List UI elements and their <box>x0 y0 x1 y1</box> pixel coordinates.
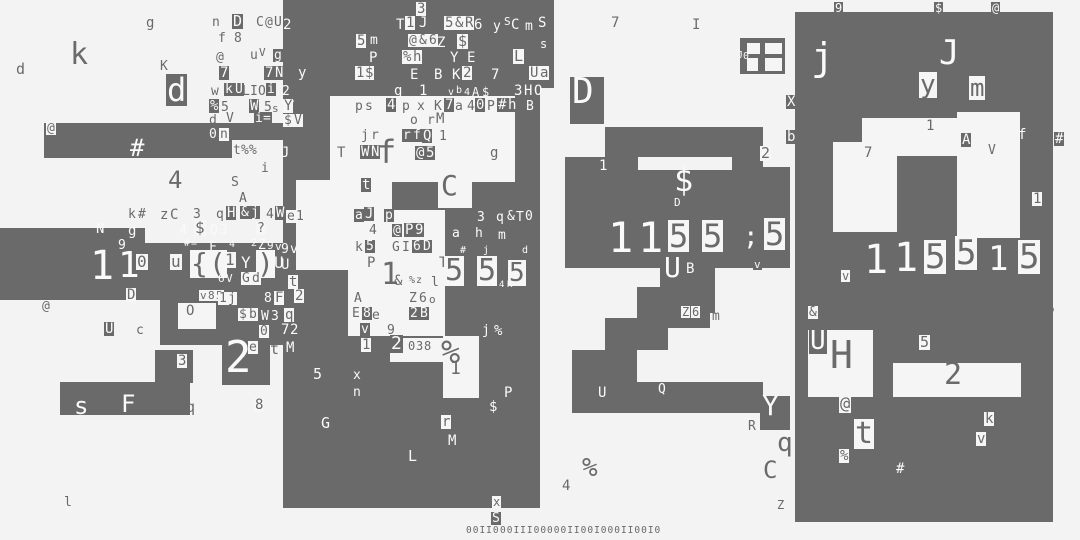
glyph: Q <box>210 224 218 237</box>
mid-strip-1 <box>605 127 732 157</box>
glyph: $ <box>934 2 943 14</box>
glyph: 1 <box>599 159 607 173</box>
glyph: $ <box>489 400 497 414</box>
glyph: r <box>441 415 451 429</box>
glyph: g <box>128 224 136 238</box>
glyph: M <box>436 112 444 126</box>
glyph: S <box>538 16 546 30</box>
glyph: P <box>369 51 377 65</box>
glyph: @ <box>839 396 851 413</box>
glyph: { <box>190 250 209 278</box>
glyph: J <box>364 207 374 221</box>
glyph: 3 <box>271 310 279 323</box>
glyph: A <box>273 128 281 141</box>
glyph: a <box>455 100 463 113</box>
glyph: 2 <box>294 289 304 303</box>
glyph: m <box>370 34 378 47</box>
glyph: n <box>353 386 361 399</box>
glyph: Z <box>777 499 784 511</box>
glyph: v <box>976 432 986 446</box>
glyph: g <box>273 49 283 62</box>
glyph: V <box>226 273 233 284</box>
glyph: 2 <box>283 18 291 32</box>
glyph: P <box>404 223 414 237</box>
glyph: Q <box>422 129 432 143</box>
glyph: B <box>419 307 429 320</box>
glyph: 3 <box>514 84 522 98</box>
window-pane-2 <box>765 43 782 54</box>
glyph: N <box>274 66 284 80</box>
glyph: 5 <box>444 256 464 286</box>
glyph: 4 <box>464 88 470 98</box>
glyph: U <box>598 386 606 400</box>
glyph: 5 <box>356 34 366 48</box>
glyph: 1 <box>926 119 934 133</box>
glyph: 5 <box>313 367 322 382</box>
binary-row-right: 00III00000II00I000II00I0 <box>500 526 661 536</box>
glyph: q <box>284 308 294 322</box>
glyph: I <box>692 18 700 32</box>
glyph: f <box>218 32 226 45</box>
glyph: 3 <box>177 354 187 368</box>
glyph: % <box>402 50 412 64</box>
glyph: 4 <box>266 208 274 221</box>
glyph: U <box>809 328 827 354</box>
glyph: C <box>511 18 519 32</box>
glyph: P <box>487 100 495 113</box>
glyph: D <box>422 240 432 253</box>
glyph: A <box>961 133 971 147</box>
glyph: a <box>452 227 460 240</box>
glyph: y <box>919 72 937 98</box>
glyph: a <box>354 209 364 222</box>
glyph: H <box>830 336 853 374</box>
glyph: D <box>126 288 136 302</box>
glyph: y <box>298 66 306 80</box>
glyph: J <box>281 146 289 160</box>
glyph: u <box>250 49 258 62</box>
glyph: z <box>416 276 422 286</box>
window-pane-4 <box>765 58 782 71</box>
glyph: V <box>988 144 996 157</box>
glyph: 5 <box>425 146 435 160</box>
glyph: e <box>248 341 258 354</box>
glyph: x <box>353 369 361 382</box>
glyph: R <box>464 16 474 30</box>
glyph: 0 <box>475 98 485 112</box>
glyph: 9 <box>834 2 843 14</box>
glyph: D <box>232 14 243 29</box>
glyph: 8 <box>254 398 264 412</box>
glyph: s <box>365 100 373 113</box>
glyph: 4 <box>467 100 475 113</box>
glyph: 7 <box>219 66 229 80</box>
glyph: P <box>1046 306 1054 320</box>
glyph: 7 <box>444 98 454 112</box>
glyph: 2 <box>944 360 962 390</box>
glyph: 2 <box>462 66 472 80</box>
glyph: $ <box>194 220 206 236</box>
glyph: 7 <box>264 66 274 80</box>
glyph: $ <box>457 34 468 49</box>
glyph: 2 <box>282 85 290 98</box>
glyph: S <box>491 512 501 525</box>
stair-3 <box>605 318 637 350</box>
glyph: 3 <box>416 2 426 16</box>
glyph: p <box>402 100 410 113</box>
glyph: H <box>226 206 236 220</box>
glitch-art-canvas: gkdKdnDC@U2f8@uVg77NywkULIOi2%5W5sYdVi=$… <box>0 0 1080 540</box>
glyph: # <box>497 98 507 112</box>
glyph: 7 <box>864 146 872 160</box>
glyph: D <box>572 74 594 110</box>
glyph: A <box>239 192 247 205</box>
glyph: 7 <box>491 68 499 82</box>
glyph: i <box>266 83 276 96</box>
glyph: & <box>418 34 428 47</box>
glyph: g <box>146 16 154 30</box>
glyph: F <box>121 392 135 416</box>
glyph: c <box>136 324 144 337</box>
glyph: 1 <box>638 217 663 259</box>
glyph: S <box>231 176 239 189</box>
glyph: Z <box>681 306 690 318</box>
glyph: 7 <box>281 323 289 337</box>
glyph: & <box>240 206 250 219</box>
glyph: e <box>372 309 380 322</box>
glyph: # <box>130 136 144 160</box>
glyph: 3 <box>477 211 485 224</box>
glyph: s <box>74 394 88 418</box>
glyph: v <box>841 270 850 282</box>
glyph: = <box>262 112 272 125</box>
glyph: G <box>392 241 400 254</box>
stair-4 <box>572 350 637 413</box>
glyph: % <box>409 276 415 286</box>
glyph: q <box>496 211 504 224</box>
glyph: @ <box>216 51 224 64</box>
glyph: 1 <box>864 240 888 280</box>
glyph: b <box>456 86 462 96</box>
glyph: 3 <box>416 340 423 352</box>
glyph: @ <box>392 224 402 237</box>
glyph: ? <box>256 222 266 235</box>
glyph: 5 <box>444 16 454 30</box>
glyph: 1 <box>450 360 461 378</box>
glyph: & <box>394 274 402 288</box>
glyph: % <box>494 324 502 338</box>
glyph: W <box>360 145 370 159</box>
glyph: K <box>507 281 512 290</box>
glyph: j <box>811 38 834 76</box>
glyph: # <box>1054 132 1064 146</box>
glyph: R <box>748 420 756 433</box>
glyph: g <box>394 84 402 98</box>
glyph: k <box>224 83 234 96</box>
glyph: 6 <box>419 292 427 305</box>
glyph: 8 <box>424 340 431 352</box>
glyph: % <box>209 99 219 113</box>
glyph: 2 <box>290 323 298 337</box>
glyph: b <box>248 308 258 321</box>
glyph: V <box>293 114 303 127</box>
stair-1 <box>637 287 668 350</box>
glyph: g <box>490 146 498 160</box>
glyph: G <box>321 416 330 431</box>
glyph: d <box>209 114 217 127</box>
glyph: @ <box>991 2 1000 14</box>
glyph: # <box>896 462 904 476</box>
glyph: t <box>361 178 371 192</box>
glyph: % <box>249 144 257 157</box>
glyph: T <box>337 146 345 160</box>
glyph: d <box>522 246 528 256</box>
glyph: v <box>753 259 762 270</box>
glyph: l <box>64 496 72 509</box>
glyph: O <box>534 84 542 98</box>
glyph: 6 <box>218 273 225 284</box>
glyph: j <box>227 292 237 305</box>
glyph: 4 <box>229 240 235 250</box>
glyph: E <box>352 307 360 320</box>
glyph: B <box>686 262 694 276</box>
glyph: 1 <box>894 238 918 278</box>
glyph: j <box>250 206 260 219</box>
glyph: s <box>272 103 279 114</box>
glyph: B <box>434 68 442 82</box>
glyph: 5 <box>702 220 723 252</box>
glyph: # <box>184 239 190 249</box>
rp-hole-3 <box>957 112 1020 238</box>
glyph: C <box>763 458 777 482</box>
glyph: 1 <box>439 130 447 143</box>
glyph: Y <box>283 99 293 113</box>
glyph: 0 <box>524 210 534 223</box>
glyph: 2 <box>409 307 419 320</box>
glyph: % <box>241 144 249 157</box>
glyph: n <box>219 128 229 141</box>
glyph: f <box>1018 128 1026 142</box>
glyph: 4 <box>386 98 396 112</box>
glyph: 1 <box>405 16 415 30</box>
glyph: a <box>539 66 549 80</box>
glyph: @ <box>265 16 273 29</box>
glyph: A <box>354 292 362 305</box>
glyph: o <box>429 294 436 305</box>
glyph: % <box>265 130 273 143</box>
glyph: 0 <box>743 52 749 62</box>
glyph: C <box>441 172 458 200</box>
glyph: d <box>166 74 187 106</box>
glyph: 9 <box>281 243 289 256</box>
glyph: l <box>431 276 439 289</box>
glyph: 1 <box>361 338 371 352</box>
glyph: 4 <box>168 168 182 192</box>
glyph: S <box>504 16 511 27</box>
glyph: m <box>498 229 506 242</box>
glyph: 5 <box>365 240 375 253</box>
glyph: % <box>582 455 598 481</box>
glyph: d <box>16 62 25 77</box>
glyph: h <box>507 98 517 112</box>
glyph: w <box>211 85 219 98</box>
stair-strip <box>637 382 763 413</box>
glyph: $ <box>283 114 293 127</box>
glyph: # <box>138 208 146 221</box>
glyph: 5 <box>924 240 946 274</box>
glyph: 1 <box>295 210 305 223</box>
glyph: O <box>258 85 266 98</box>
glyph: E <box>410 68 418 82</box>
glyph: U <box>281 258 289 272</box>
glyph: & <box>506 210 516 223</box>
glyph: 0 <box>209 128 217 141</box>
glyph: 2 <box>390 335 403 353</box>
glyph: Y <box>241 255 251 271</box>
glyph: 1 <box>90 246 114 286</box>
glyph: i <box>261 162 269 175</box>
glyph: 0 <box>408 340 415 352</box>
glyph: W <box>275 206 285 220</box>
glyph: X <box>786 95 796 109</box>
glyph: i <box>257 130 265 143</box>
glyph: r <box>427 114 435 127</box>
glyph: f <box>412 129 422 142</box>
glyph: @ <box>42 300 50 313</box>
glyph: n <box>212 16 220 29</box>
glyph: j <box>482 324 490 337</box>
glyph: 5 <box>919 335 930 350</box>
glyph: D <box>674 197 681 208</box>
glyph: V <box>226 112 234 125</box>
glyph: C <box>170 208 178 222</box>
glyph: 4 <box>499 281 504 290</box>
glyph: 1 <box>224 252 236 268</box>
glyph: Z <box>409 292 417 305</box>
glyph: y <box>493 20 501 33</box>
glyph: p <box>384 209 394 222</box>
glyph: 1 <box>988 242 1008 276</box>
glyph: J <box>939 36 959 70</box>
glyph: d <box>251 272 261 285</box>
glyph: U <box>104 322 114 336</box>
glyph: m <box>525 20 533 33</box>
glyph: W <box>261 310 269 323</box>
glyph: I <box>250 85 258 98</box>
glyph: q <box>186 400 195 415</box>
glyph: 4 <box>179 224 187 237</box>
glyph: m <box>712 310 720 323</box>
glyph: Y <box>450 51 458 65</box>
glyph: J <box>419 16 427 30</box>
glyph: t <box>270 342 279 357</box>
glyph: 1 <box>419 84 427 98</box>
glyph: L <box>242 85 250 98</box>
glyph: h <box>475 227 483 240</box>
glyph: 1 <box>608 217 633 259</box>
binary-row-left: 00II0 <box>466 526 500 536</box>
glyph: @ <box>46 122 56 135</box>
glyph: B <box>526 100 534 113</box>
glyph: % <box>839 449 849 463</box>
glyph: @ <box>415 146 425 160</box>
glyph: 4 <box>369 224 377 237</box>
glyph: C <box>256 16 264 29</box>
glyph: L <box>513 49 524 64</box>
glyph: U <box>664 254 681 282</box>
glyph: j <box>361 129 369 142</box>
glyph: & <box>808 306 818 319</box>
glyph: M <box>448 434 456 448</box>
glyph: $ <box>364 66 374 80</box>
glyph: U <box>274 16 282 29</box>
glyph: H <box>524 84 532 98</box>
glyph: $ <box>238 308 248 321</box>
glyph: 5 <box>764 218 785 250</box>
glyph: h <box>492 279 497 288</box>
glyph: F <box>274 291 284 305</box>
glyph: K <box>452 68 460 82</box>
glyph: u <box>170 254 182 270</box>
glyph: 8 <box>234 32 242 45</box>
glyph: z <box>160 208 168 222</box>
glyph: t <box>854 419 874 449</box>
glyph: 6 <box>412 240 422 253</box>
glyph: Q <box>658 383 666 396</box>
glyph: P <box>504 386 512 400</box>
glyph: 9 <box>414 223 424 237</box>
glyph: k <box>355 241 363 254</box>
glyph: 8 <box>264 292 272 305</box>
glyph: h <box>412 50 422 64</box>
glyph: m <box>969 76 985 100</box>
glyph: G <box>241 272 251 285</box>
glyph: x <box>492 496 501 508</box>
glyph: ; <box>743 224 759 250</box>
glyph: M <box>286 341 294 355</box>
glyph: 3 <box>220 224 228 237</box>
glyph: 0 <box>259 325 269 338</box>
glyph: 6 <box>474 18 482 32</box>
glyph: t <box>233 144 241 157</box>
glyph: v <box>360 323 370 336</box>
glyph: q <box>777 430 793 456</box>
glyph: f <box>377 136 396 168</box>
glyph: & <box>454 16 464 30</box>
glyph: L <box>408 449 417 464</box>
glyph: q <box>216 208 224 221</box>
glyph: o <box>410 114 418 127</box>
glyph: V <box>259 47 266 58</box>
glyph: 8 <box>362 307 372 320</box>
glyph: x <box>417 100 425 113</box>
glyph: r <box>402 129 412 142</box>
glyph: T <box>396 18 404 32</box>
glyph: Z <box>437 36 445 50</box>
glyph: T <box>516 211 524 224</box>
glyph: 1 <box>1032 192 1042 206</box>
o-hole <box>178 303 216 329</box>
glyph: 6 <box>691 306 700 318</box>
glyph: 5 <box>955 236 977 270</box>
glyph: k <box>70 40 88 70</box>
glyph: $ <box>674 164 693 196</box>
glyph: 7 <box>611 16 619 30</box>
glyph: Y <box>762 392 779 420</box>
glyph: @ <box>408 34 418 47</box>
glyph: k <box>984 412 994 426</box>
glyph: O <box>186 304 194 318</box>
